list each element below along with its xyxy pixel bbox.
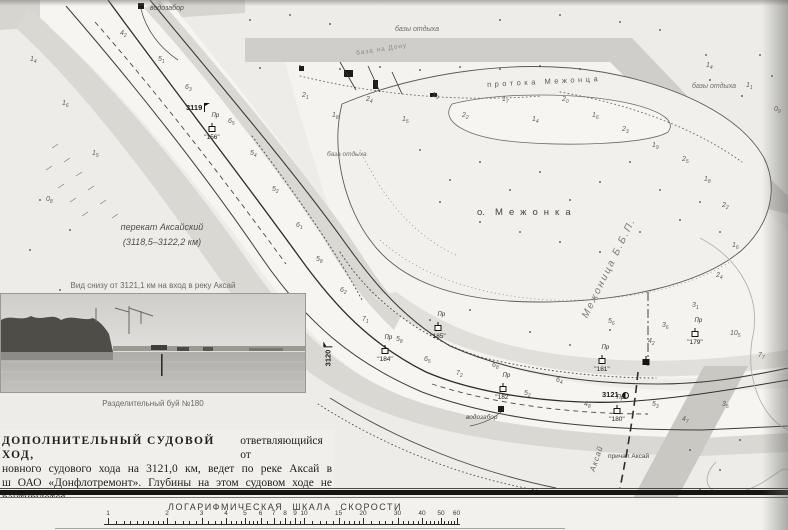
photo-caption-top: Вид снизу от 3121,1 км на вход в реку Ак… [0,281,306,290]
depth-sounding: 24 [366,96,373,105]
depth-sounding: 72 [456,370,463,379]
depth-sounding: 42 [120,30,127,39]
depth-sounding: 64 [556,377,563,386]
depth-sounding: 22 [462,112,469,121]
depth-sounding: 63 [185,84,192,93]
note-line-1: ДОПОЛНИТЕЛЬНЫЙ СУДОВОЙ ХОД, ответвляющий… [2,434,332,462]
photo-boat-3 [203,347,213,351]
depth-sounding: 18 [704,176,711,185]
depth-sounding: 19 [652,142,659,151]
scan-shadow-top [0,0,788,6]
page-bottom-edge-line [55,528,565,529]
depth-sounding: 19 [432,92,439,101]
depth-sounding: 22 [722,202,729,211]
depth-sounding: 20 [562,96,569,105]
depth-sounding: 62 [340,287,347,296]
depth-sounding: 15 [92,150,99,159]
depth-sounding: 31 [692,302,699,311]
photo-boat-2 [177,347,189,351]
depth-sounding: 11 [746,82,753,91]
depth-sounding: 24 [716,272,723,281]
depth-sounding: 42 [648,338,655,347]
nautical-chart-page: водозабор базы отдыха база на Дону базы … [0,0,788,530]
depth-sounding: 58 [316,256,323,265]
depth-sounding: 16 [732,242,739,251]
photo-tree-reflection [1,352,113,360]
depth-sounding: 48 [584,401,591,410]
depth-sounding: 56 [608,318,615,327]
depth-sounding: 51 [158,56,165,65]
depth-sounding: 14 [706,62,713,71]
depth-sounding: 15 [402,116,409,125]
photo-inset [0,293,306,393]
depth-sounding: 25 [682,156,689,165]
speed-scale-title: ЛОГАРИФМИЧЕСКАЯ ШКАЛА СКОРОСТИ [105,502,465,512]
depth-sounding: 14 [30,56,37,65]
depth-sounding: 71 [362,316,369,325]
note-heading: ДОПОЛНИТЕЛЬНЫЙ СУДОВОЙ ХОД, [2,434,240,462]
depth-sounding: 17 [502,96,509,105]
depth-sounding: 61 [296,222,303,231]
depth-sounding: 21 [302,92,309,101]
depth-sounding: 105 [730,330,741,339]
depth-sounding: 52 [272,186,279,195]
depth-sounding: 53 [652,401,659,410]
photo-boat-1 [151,345,167,350]
chart-border-line-thin [0,488,788,489]
photo-divider-buoy-pole [161,354,163,376]
depth-sounding: 16 [62,100,69,109]
depth-sounding: 16 [592,112,599,121]
depth-sounding: 23 [622,126,629,135]
depth-sounding: 18 [332,112,339,121]
depth-sounding: 68 [492,362,499,371]
note-line-1-rest: ответвляющийся от [240,434,332,462]
photo-caption-bottom: Разделительный буй №180 [0,399,306,408]
depth-sounding: 58 [396,336,403,345]
chart-border-line-thick [0,490,788,495]
depth-sounding: 47 [682,416,689,425]
depth-sounding: 54 [250,150,257,159]
depth-sounding: 36 [662,322,669,331]
depth-sounding: 08 [46,196,53,205]
additional-channel-note: ДОПОЛНИТЕЛЬНЫЙ СУДОВОЙ ХОД, ответвляющий… [0,430,334,507]
note-line-2: новного судового хода на 3121,0 км, веде… [2,462,332,476]
depth-sounding: 35 [722,401,729,410]
photo-pier-right [249,348,283,351]
scan-shadow-right [762,0,788,530]
depth-sounding: 14 [532,116,539,125]
depth-sounding: 52 [524,390,531,399]
photo-image [1,294,306,393]
depth-sounding: 65 [228,118,235,127]
depth-sounding: 65 [424,356,431,365]
